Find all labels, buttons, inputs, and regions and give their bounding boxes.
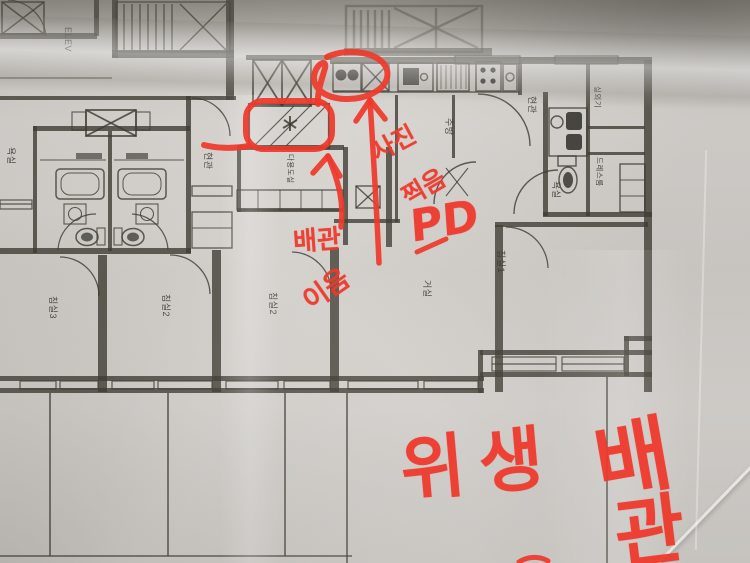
red-tick-bottom-edge [519, 557, 548, 562]
red-stray-stroke-living [417, 239, 446, 252]
floor-plan-photo: ELEV 욕실 현관 다용도실 주방 현관 욕실 실외기 드레스룸 침실3 침실… [0, 0, 750, 563]
red-arrow-to-sink [356, 100, 385, 263]
red-marker-strokes [0, 0, 750, 563]
red-circle-around-sink [314, 52, 388, 104]
red-box-around-duct [204, 101, 332, 149]
red-arrow-to-duct [313, 156, 342, 227]
